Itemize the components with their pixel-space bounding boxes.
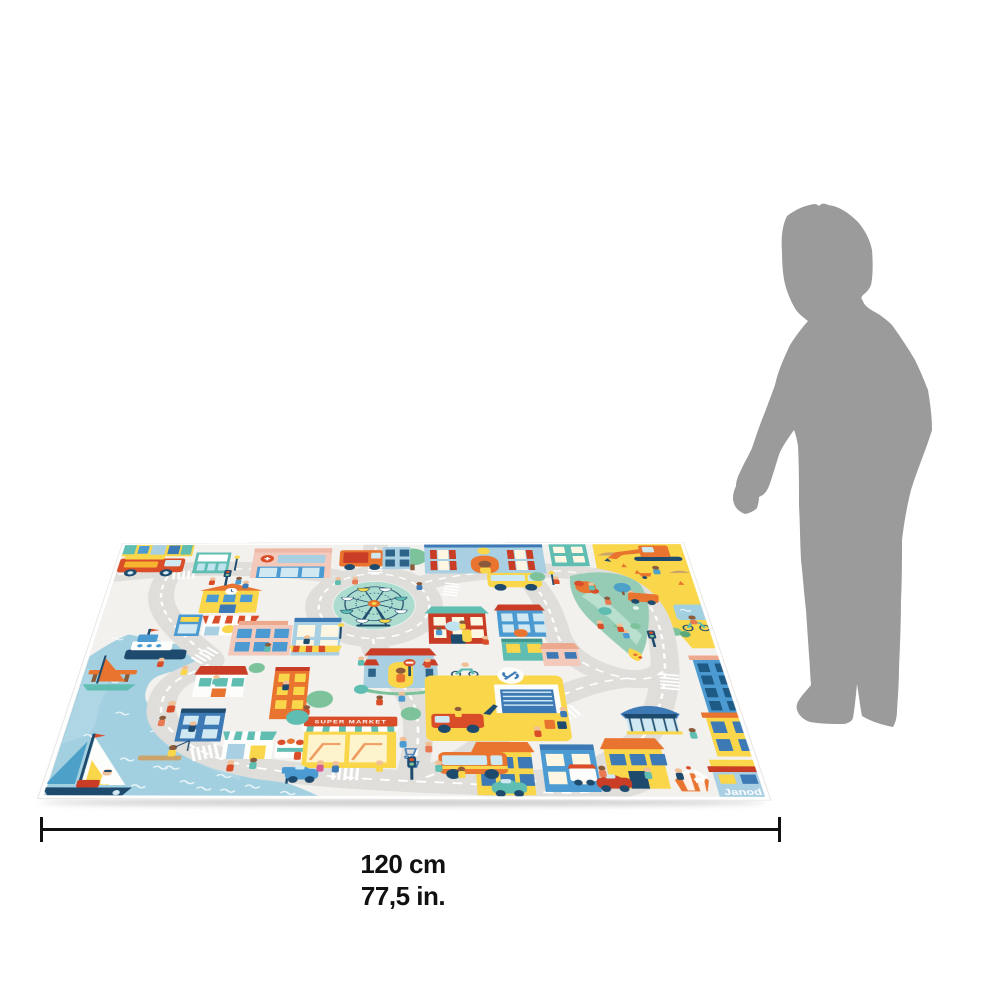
svg-text:Janod: Janod xyxy=(722,786,764,797)
svg-text:SUPER MARKET: SUPER MARKET xyxy=(314,719,387,725)
